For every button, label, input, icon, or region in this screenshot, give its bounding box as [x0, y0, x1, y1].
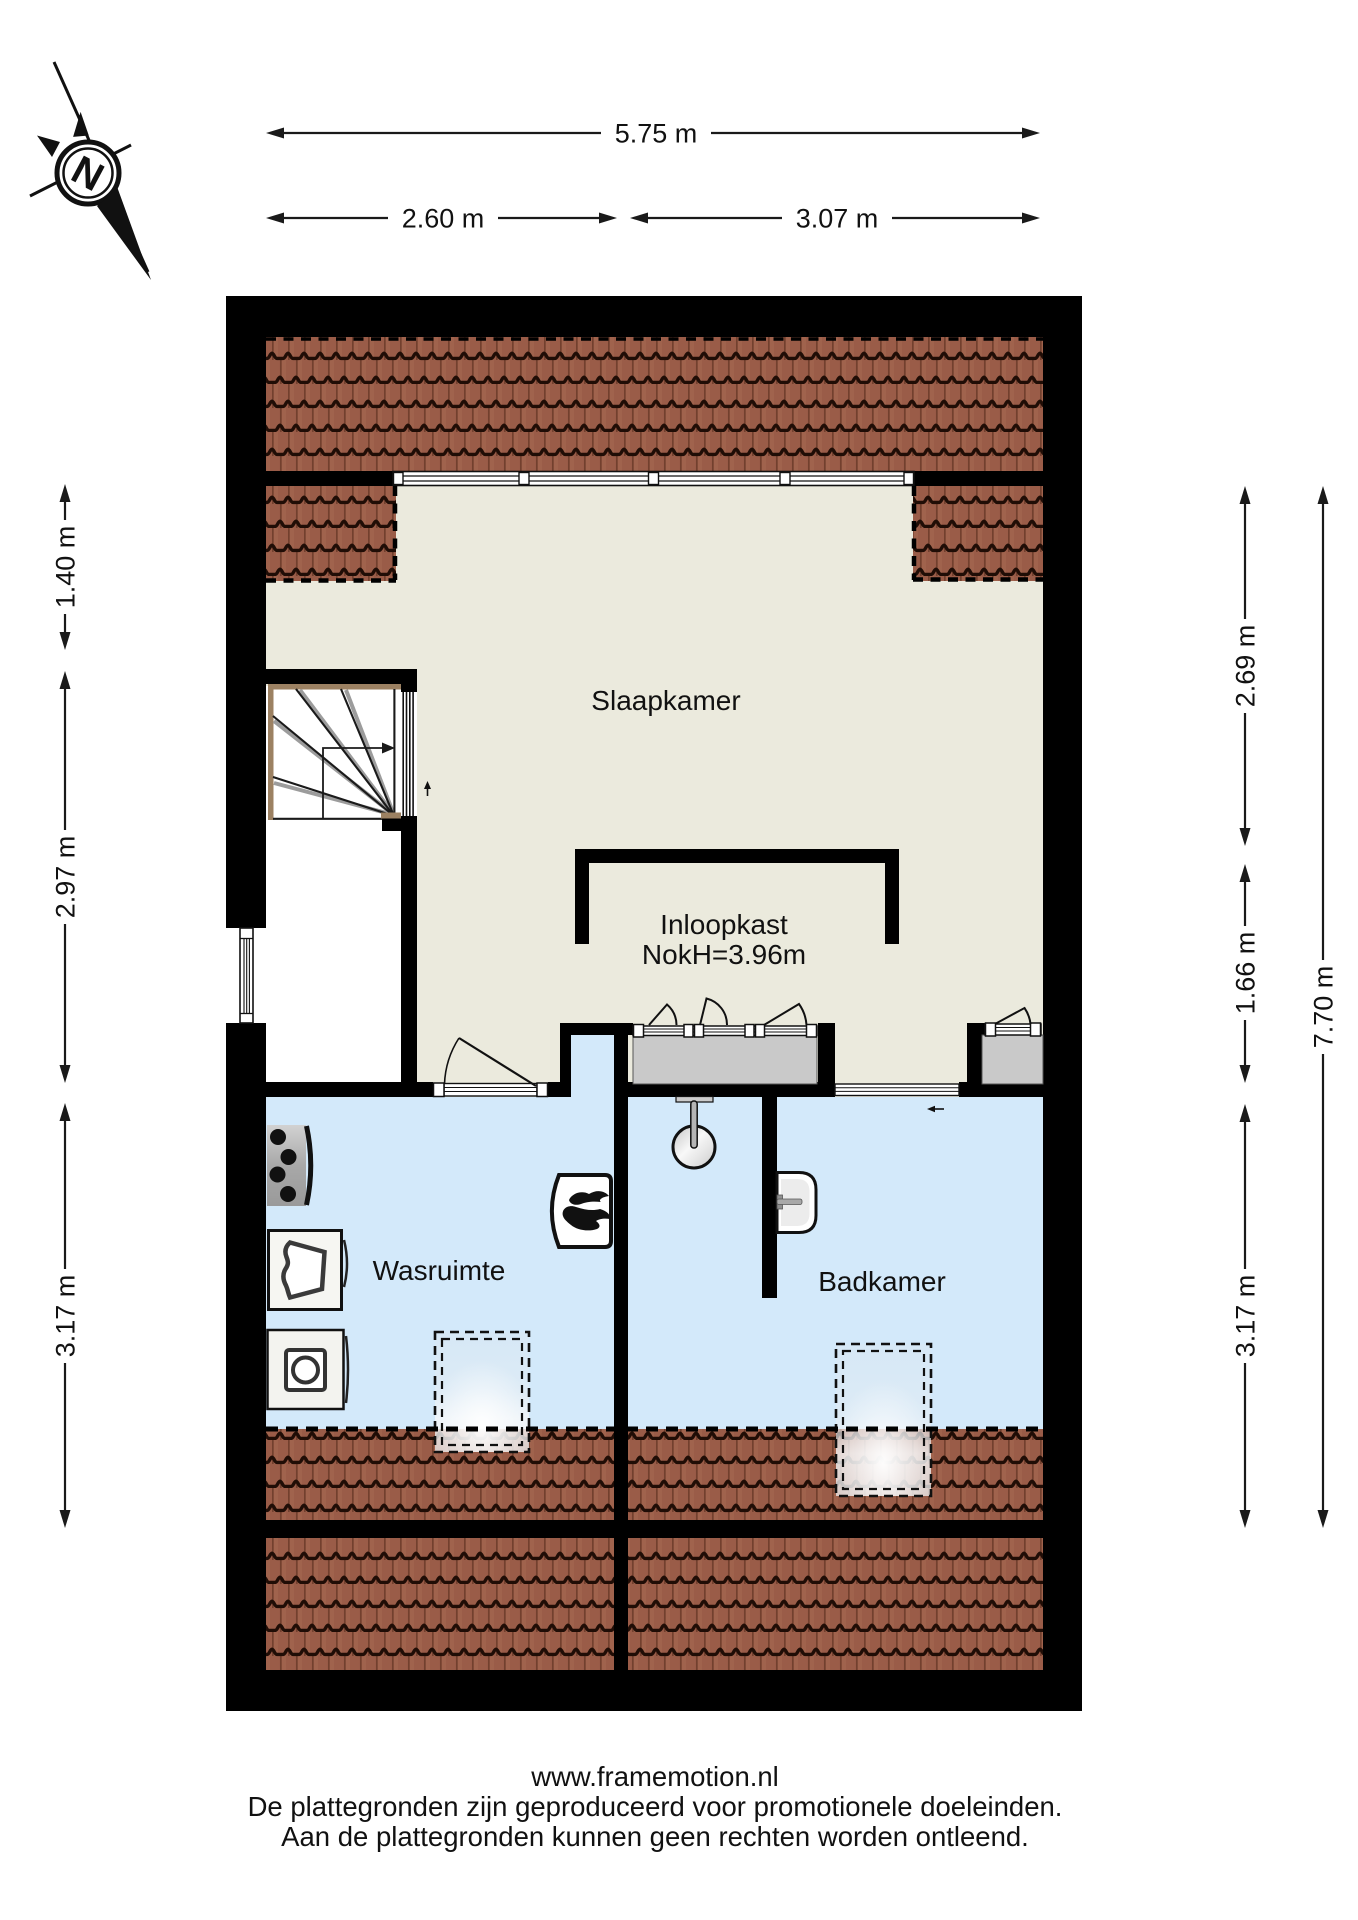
svg-text:Aan de plattegronden kunnen ge: Aan de plattegronden kunnen geen rechten…	[281, 1821, 1029, 1852]
svg-text:2.97 m: 2.97 m	[51, 836, 81, 919]
svg-text:1.40 m: 1.40 m	[51, 526, 81, 609]
svg-text:De plattegronden zijn geproduc: De plattegronden zijn geproduceerd voor …	[248, 1791, 1063, 1822]
svg-text:2.60 m: 2.60 m	[402, 204, 485, 234]
svg-text:7.70 m: 7.70 m	[1309, 966, 1339, 1049]
svg-text:2.69 m: 2.69 m	[1231, 625, 1261, 708]
svg-text:3.17 m: 3.17 m	[51, 1275, 81, 1358]
svg-text:1.66 m: 1.66 m	[1231, 932, 1261, 1015]
svg-text:NokH=3.96m: NokH=3.96m	[642, 939, 806, 970]
svg-text:3.17 m: 3.17 m	[1231, 1275, 1261, 1358]
svg-text:5.75 m: 5.75 m	[615, 119, 698, 149]
svg-text:www.framemotion.nl: www.framemotion.nl	[530, 1761, 779, 1792]
svg-text:Badkamer: Badkamer	[818, 1266, 946, 1297]
svg-text:Slaapkamer: Slaapkamer	[591, 685, 740, 716]
svg-text:Inloopkast: Inloopkast	[660, 909, 788, 940]
svg-text:3.07 m: 3.07 m	[796, 204, 879, 234]
svg-text:Wasruimte: Wasruimte	[373, 1255, 506, 1286]
